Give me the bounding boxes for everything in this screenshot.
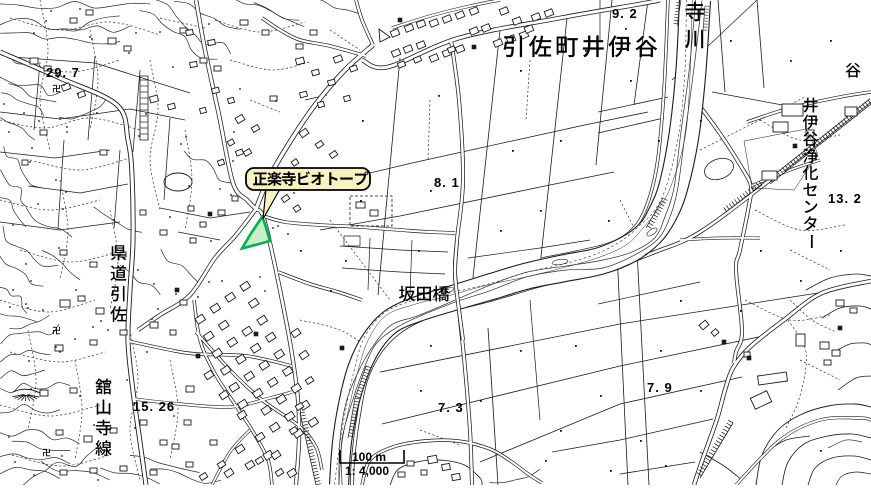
svg-text:15. 26: 15. 26 xyxy=(133,399,175,414)
svg-text:8. 1: 8. 1 xyxy=(434,175,460,190)
svg-text:100 m: 100 m xyxy=(352,450,386,464)
svg-text:7. 3: 7. 3 xyxy=(438,400,464,415)
svg-text:13. 2: 13. 2 xyxy=(828,191,862,206)
svg-text:7. 9: 7. 9 xyxy=(647,380,673,395)
svg-text:29. 7: 29. 7 xyxy=(46,65,80,80)
svg-text:1: 4,000: 1: 4,000 xyxy=(345,464,389,478)
svg-text:9. 2: 9. 2 xyxy=(612,6,638,21)
